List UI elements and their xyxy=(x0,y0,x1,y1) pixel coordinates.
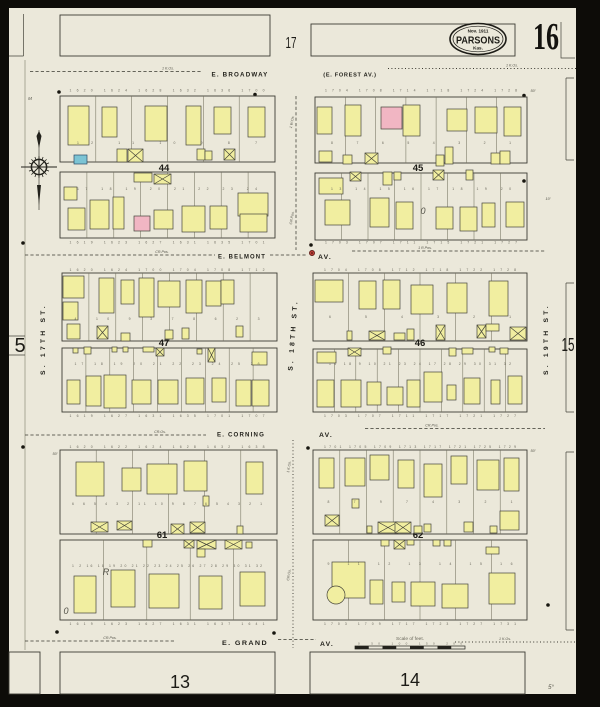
svg-text:E. BROADWAY: E. BROADWAY xyxy=(212,72,269,79)
svg-text:13: 13 xyxy=(170,672,190,692)
svg-text:1703 1707 1711 1717 1721 1727: 1703 1707 1711 1717 1721 1727 xyxy=(324,414,516,418)
svg-text:CR.Os.: CR.Os. xyxy=(154,430,166,434)
svg-text:1 K.Os.: 1 K.Os. xyxy=(506,64,518,68)
svg-text:Kas.: Kas. xyxy=(473,46,483,51)
svg-text:50′: 50′ xyxy=(53,452,58,456)
svg-text:AV.: AV. xyxy=(320,641,334,648)
svg-text:(E. FOREST AV.): (E. FOREST AV.) xyxy=(323,73,377,79)
svg-text:17 18 19 20 21 22 23 24 25 26: 17 18 19 20 21 22 23 24 25 26 xyxy=(75,362,260,366)
svg-text:1703 1707 1711 1715 1721 1727: 1703 1707 1711 1715 1721 1727 xyxy=(325,241,517,245)
svg-text:8 7 6 5 4 3 2 1: 8 7 6 5 4 3 2 1 xyxy=(331,141,511,145)
svg-text:61: 61 xyxy=(157,530,168,541)
svg-text:E. CORNING: E. CORNING xyxy=(217,432,265,439)
svg-text:M: M xyxy=(28,96,32,101)
svg-text:S. 17TH ST.: S. 17TH ST. xyxy=(40,305,47,375)
svg-text:50′: 50′ xyxy=(531,449,536,453)
svg-text:0: 0 xyxy=(63,606,68,616)
svg-text:AV.: AV. xyxy=(319,432,333,439)
svg-text:R: R xyxy=(103,567,110,577)
svg-text:44: 44 xyxy=(159,163,170,174)
svg-text:0: 0 xyxy=(420,206,425,216)
svg-text:5: 5 xyxy=(14,335,25,357)
svg-text:10′: 10′ xyxy=(546,197,551,201)
svg-text:E. GRAND: E. GRAND xyxy=(222,640,268,647)
svg-text:1 K.Os.: 1 K.Os. xyxy=(162,67,174,71)
svg-text:CR.Pos.: CR.Pos. xyxy=(425,424,438,428)
svg-text:CR.Pos.: CR.Pos. xyxy=(155,250,168,254)
svg-text:1 R.Pos.: 1 R.Pos. xyxy=(418,246,432,250)
svg-text:6 6 5 4 3 2 11 10 9 8 7 6 5 4: 6 6 5 4 3 2 11 10 9 8 7 6 5 4 3 2 1 xyxy=(72,502,262,506)
svg-text:45: 45 xyxy=(413,163,424,174)
svg-text:1 K.Os.: 1 K.Os. xyxy=(499,637,511,641)
svg-text:46: 46 xyxy=(415,338,426,349)
svg-text:S. 19TH ST.: S. 19TH ST. xyxy=(543,305,550,375)
svg-text:5°: 5° xyxy=(548,685,554,691)
svg-text:14: 14 xyxy=(400,670,420,690)
svg-text:CR.Pos.: CR.Pos. xyxy=(103,636,116,640)
svg-text:AV.: AV. xyxy=(318,254,332,261)
svg-text:17: 17 xyxy=(286,35,297,52)
svg-text:50′: 50′ xyxy=(531,89,536,93)
svg-text:16: 16 xyxy=(533,16,559,58)
svg-text:8 7 9 7 4 3 2 1: 8 7 9 7 4 3 2 1 xyxy=(328,500,513,504)
svg-text:E. BELMONT: E. BELMONT xyxy=(218,254,266,261)
svg-text:15: 15 xyxy=(562,335,575,355)
svg-text:Nov. 1911: Nov. 1911 xyxy=(468,29,489,34)
svg-text:47: 47 xyxy=(159,338,170,349)
